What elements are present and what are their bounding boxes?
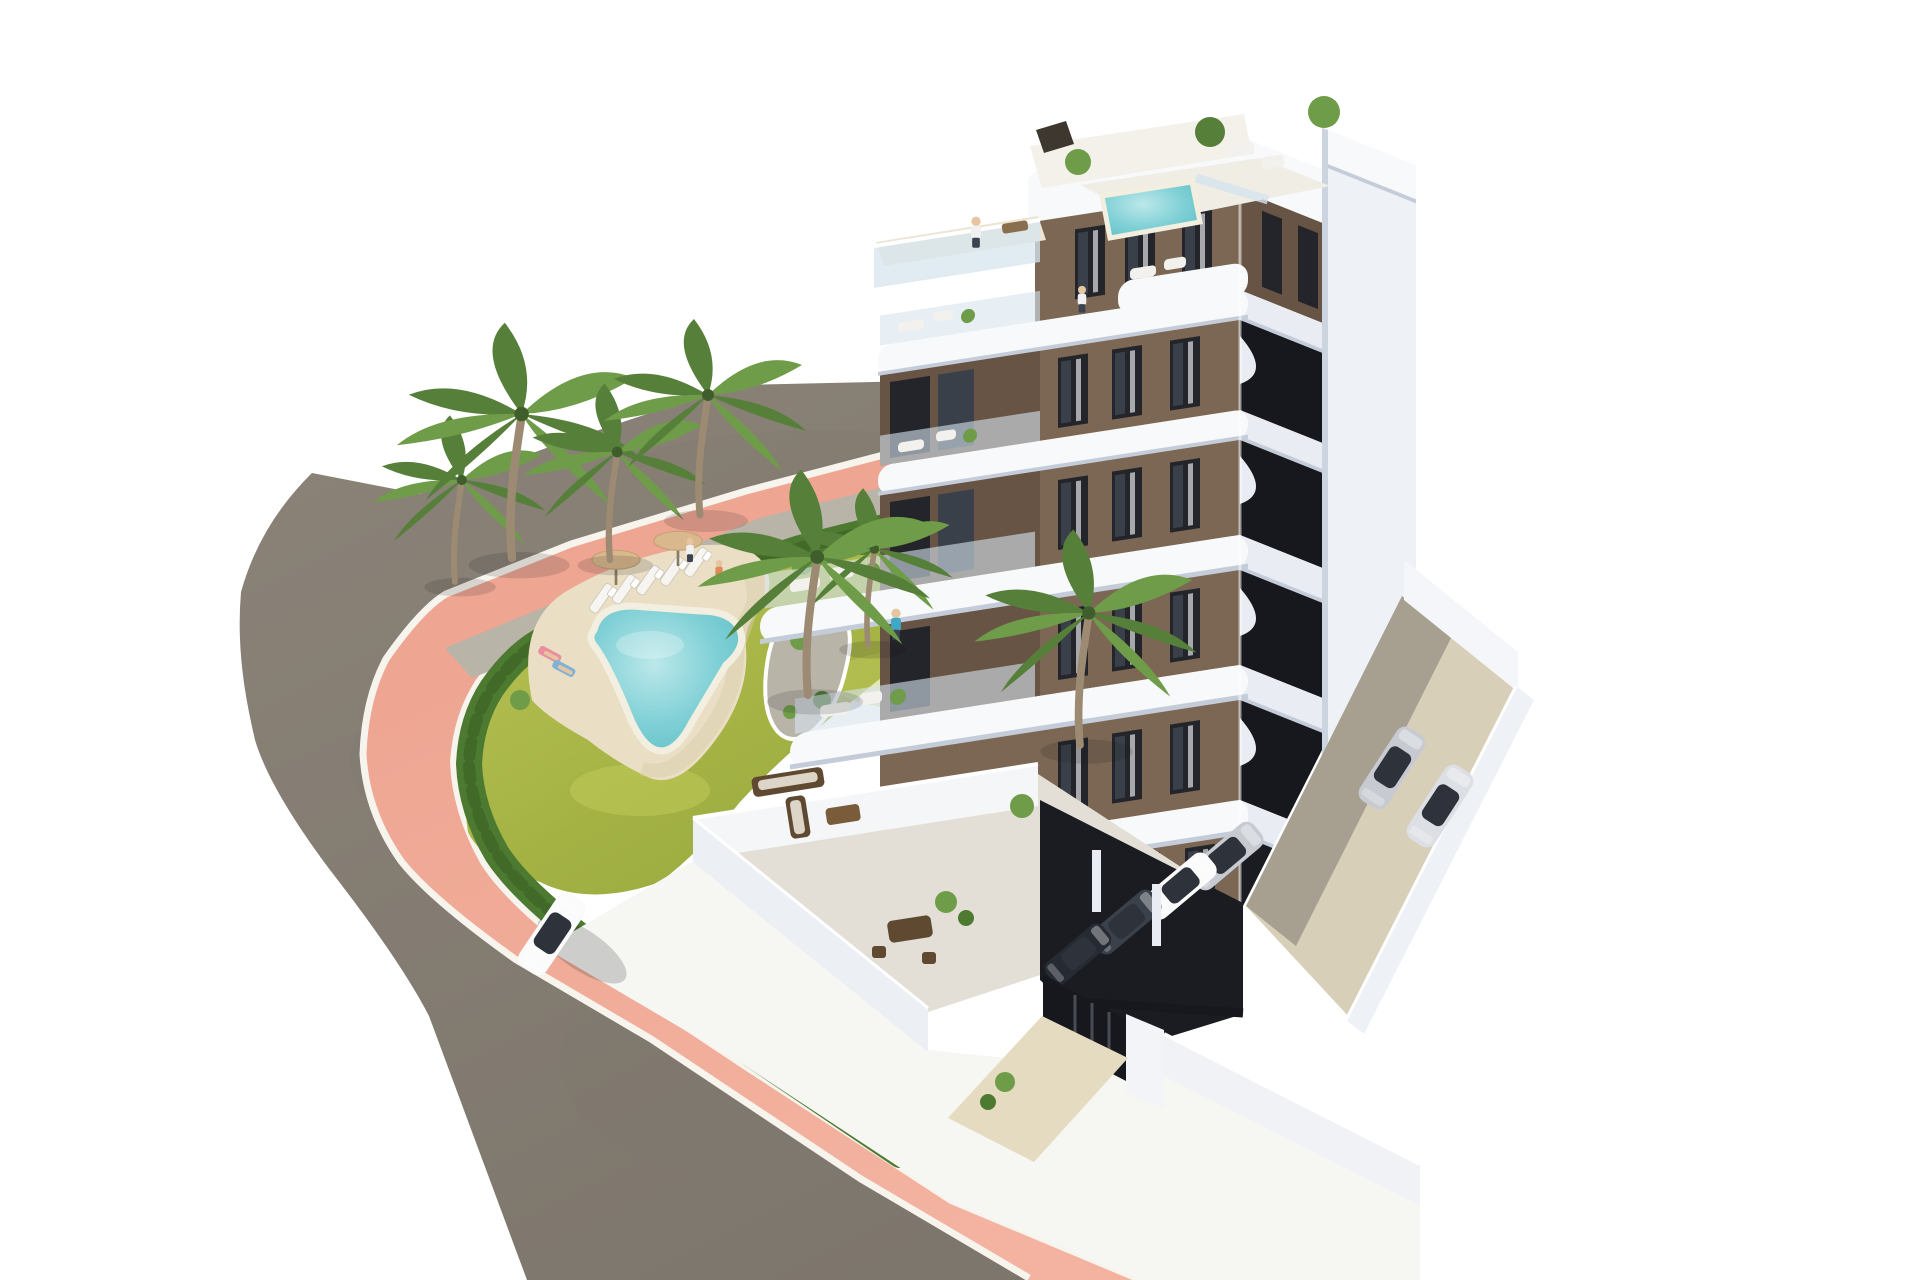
garage-pillar [1092, 850, 1101, 912]
person-poolside [686, 538, 694, 562]
person-balcony [1078, 286, 1087, 313]
rooftop-plant [1308, 96, 1340, 128]
window [1170, 588, 1200, 663]
entrance-plant [980, 1094, 996, 1110]
person-rooftop [971, 217, 981, 248]
window [1112, 467, 1142, 542]
window [1170, 336, 1200, 411]
window [1112, 345, 1142, 420]
window [1058, 353, 1088, 428]
rooftop-plant [1065, 149, 1091, 175]
window [1170, 458, 1200, 533]
window [1170, 720, 1200, 795]
rooftop-plant [1195, 117, 1225, 147]
render-canvas [0, 0, 1920, 1280]
architectural-render [0, 0, 1920, 1280]
entrance-plant [995, 1072, 1015, 1092]
gate-pillar [1126, 1014, 1164, 1108]
garage-pillar [1152, 884, 1161, 946]
window [1112, 729, 1142, 804]
tower-edge [1322, 128, 1328, 766]
pool-highlight [616, 631, 684, 659]
